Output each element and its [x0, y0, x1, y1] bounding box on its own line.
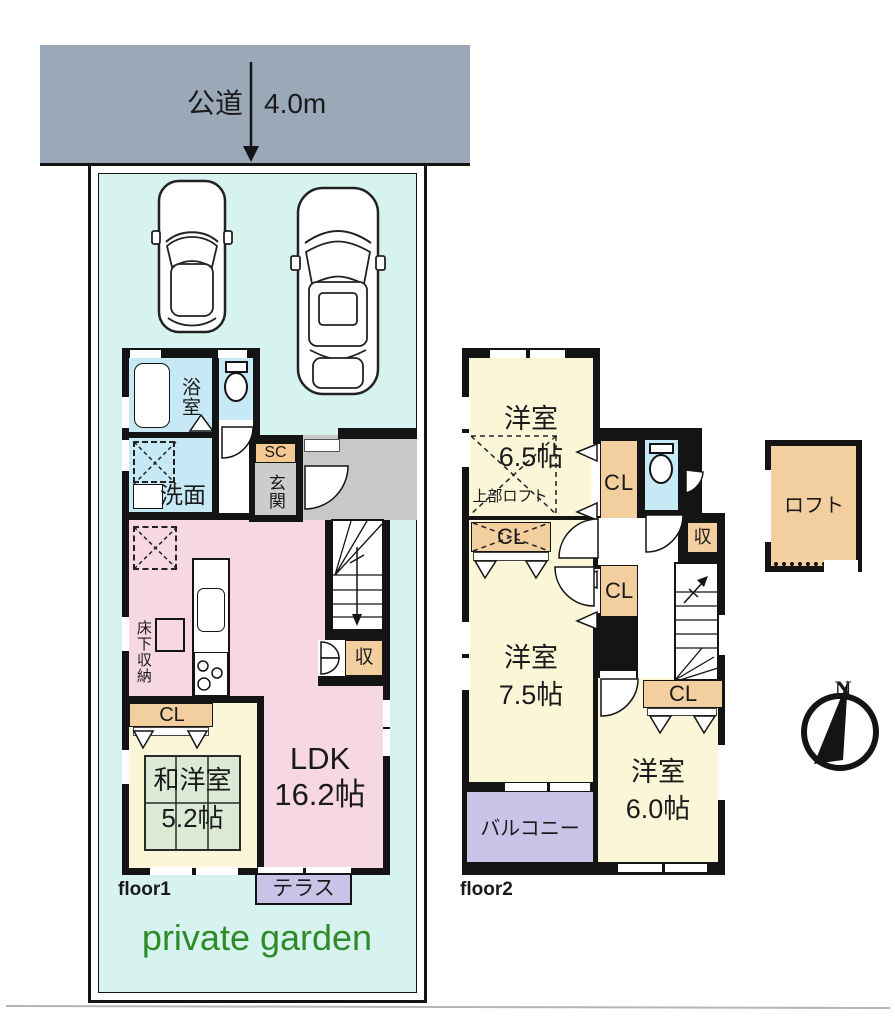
- compass-north-label: N: [828, 678, 858, 702]
- closet-f2-mid-label: CL: [600, 576, 638, 606]
- window: [122, 397, 129, 428]
- washing-machine-space: [133, 441, 175, 483]
- ldk-size-label: 16.2帖: [262, 778, 378, 812]
- storage-f2-label: 収: [687, 524, 718, 551]
- window: [462, 433, 470, 467]
- window: [383, 700, 390, 727]
- window: [490, 350, 526, 358]
- closet-f2-top-track: [591, 444, 600, 516]
- fridge-space: [133, 526, 177, 570]
- loft-ladder: [774, 552, 826, 566]
- bedroom-75-name: 洋室: [481, 643, 581, 673]
- closet-f1-track: [133, 727, 209, 736]
- porch-wall: [338, 428, 417, 439]
- closet-f2-60-track: [647, 708, 717, 716]
- window: [196, 867, 238, 875]
- closet-f2-75-label: CL: [471, 524, 551, 550]
- closet-f2-75-track: [473, 552, 549, 561]
- bedroom-60-size: 6.0帖: [608, 794, 708, 824]
- closet-f2-top-label: CL: [606, 460, 632, 505]
- washroom-label: 洗面: [158, 482, 208, 508]
- window: [218, 350, 247, 358]
- toilet-room-f1: [219, 358, 253, 420]
- tatami-name-label: 和洋室: [145, 766, 240, 796]
- road-width-label: 4.0m: [264, 88, 354, 120]
- terrace-label: テラス: [255, 876, 352, 902]
- hall-f1: [219, 420, 253, 513]
- road-area: [40, 45, 470, 166]
- balcony-label: バルコニー: [470, 816, 590, 842]
- window: [550, 783, 590, 791]
- loft-above-label: 上部ロフト: [470, 488, 550, 506]
- underfloor-storage-box: [155, 618, 185, 652]
- bedroom-65-size: 6.5帖: [481, 442, 581, 472]
- bedroom-60-door-gap: [600, 671, 636, 680]
- window: [665, 864, 707, 872]
- private-garden-label: private garden: [98, 916, 416, 960]
- window: [530, 350, 565, 358]
- tatami-size-label: 5.2帖: [145, 804, 240, 834]
- underfloor-storage-label: 床下収納: [133, 597, 153, 707]
- window: [122, 750, 129, 784]
- window: [130, 350, 161, 358]
- bathtub: [134, 363, 170, 428]
- entrance-step: [304, 439, 340, 452]
- floor1-label: floor1: [118, 878, 188, 902]
- kitchen-stove: [194, 652, 228, 696]
- storage-f1-label: 収: [345, 642, 383, 674]
- window: [383, 729, 390, 756]
- closet-f2-60-label: CL: [643, 681, 723, 707]
- loft-label: ロフト: [770, 494, 858, 518]
- bedroom-60-name: 洋室: [608, 757, 708, 787]
- kitchen-sink: [197, 588, 225, 632]
- window: [505, 783, 547, 791]
- toilet-room-f2: [645, 440, 678, 510]
- window: [462, 397, 470, 429]
- entrance-label: 玄関: [264, 466, 286, 518]
- window: [718, 615, 725, 655]
- hall-f2-lower: [638, 565, 675, 678]
- window: [122, 440, 129, 471]
- page-edge-line: [6, 1006, 890, 1008]
- road-label: 公道: [168, 88, 243, 120]
- window: [150, 867, 192, 875]
- window: [718, 745, 725, 800]
- window: [122, 617, 129, 651]
- floorplan-page: 公道 4.0m 浴室 洗面 SC 玄関: [0, 0, 895, 1020]
- closet-f2-mid-track: [592, 569, 600, 613]
- stairs-wall-bottom: [332, 630, 383, 640]
- floor2-label: floor2: [460, 878, 536, 902]
- ldk-name-label: LDK: [270, 742, 370, 776]
- hall-f2-upper: [598, 518, 678, 565]
- bath-label: 浴室: [178, 368, 200, 426]
- shoe-closet-label: SC: [255, 444, 296, 462]
- storage-doors-f1: [318, 640, 345, 676]
- window: [462, 658, 470, 690]
- bedroom-75-size: 7.5帖: [481, 680, 581, 710]
- stairs-wall-left: [325, 520, 332, 647]
- bedroom-65-name: 洋室: [481, 404, 581, 434]
- window: [462, 622, 470, 654]
- storage-wall-bottom: [318, 676, 383, 686]
- window: [618, 864, 662, 872]
- loft-opening: [824, 560, 858, 572]
